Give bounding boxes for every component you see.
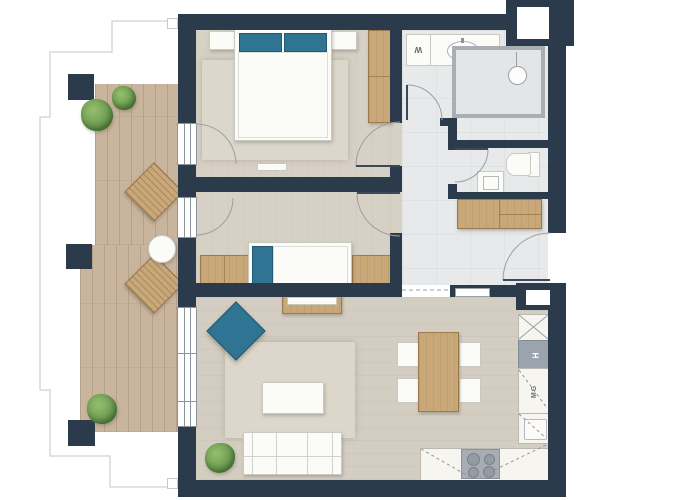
kitchen-sink-unit — [518, 413, 551, 444]
balcony-pillar-middle — [66, 244, 92, 269]
dining-chair-1 — [397, 342, 419, 367]
bedroom-1-radiator — [257, 163, 287, 171]
bed-duvet — [238, 52, 328, 138]
hall-sideboard — [457, 199, 542, 229]
wardrobe — [368, 30, 392, 123]
wc-sink — [477, 171, 504, 194]
vanity-tap — [461, 38, 464, 43]
single-bed-pillow — [252, 246, 273, 285]
wall-wc-bottom — [448, 192, 550, 199]
wall-right-upper — [548, 40, 566, 233]
balcony-round-table — [148, 235, 176, 263]
tv — [287, 297, 337, 305]
balcony-plant-small — [112, 86, 136, 110]
bedroom-1-balcony-door — [177, 123, 197, 165]
wall-left-1 — [178, 14, 196, 123]
wall-hall-vertical-b — [390, 166, 402, 192]
wc-sink-basin — [483, 176, 499, 190]
balcony-pillar-top — [68, 74, 94, 100]
bed-pillow-right — [284, 33, 327, 52]
nightstand-right — [331, 31, 357, 50]
dining-table — [418, 332, 459, 412]
facade-marker-bottom — [167, 478, 178, 489]
dining-chair-2 — [397, 378, 419, 403]
shower-arm — [516, 52, 517, 66]
bedroom-1-door-threshold — [390, 123, 402, 166]
wall-bedroom2-living — [194, 283, 402, 297]
wall-wc-left-upper — [448, 126, 457, 150]
kitchen-sink-basin — [524, 419, 547, 440]
wall-right-lower — [548, 310, 566, 497]
dining-chair-3 — [459, 342, 481, 367]
facade-marker-top — [167, 18, 178, 29]
wall-bottom — [178, 480, 566, 497]
washing-machine-label: W — [406, 34, 430, 64]
living-room-window — [177, 307, 197, 427]
toilet-bowl — [506, 153, 531, 176]
wall-bathroom-bottom — [440, 118, 457, 126]
bedroom-2-balcony-door — [177, 197, 197, 238]
tall-cabinet — [518, 314, 551, 342]
entry-door-opening — [548, 233, 566, 280]
microwave-label: MG — [531, 385, 538, 398]
dining-chair-4 — [459, 378, 481, 403]
cooktop — [461, 449, 500, 479]
wall-bedroom-divider — [194, 177, 402, 192]
shower — [452, 46, 545, 118]
shaft-opening — [517, 7, 549, 39]
bed-pillow-left — [239, 33, 282, 52]
balcony-plant-large — [81, 99, 113, 131]
balcony-pillar-bottom — [68, 420, 95, 446]
shower-head-icon — [508, 66, 527, 85]
wall-left-4 — [178, 427, 196, 497]
single-bed-duvet — [273, 246, 348, 285]
kitchen-niche — [526, 290, 550, 305]
wall-hall-vertical-a — [390, 30, 402, 123]
wall-hall-vertical-c — [390, 233, 402, 283]
sofa — [243, 432, 342, 475]
wall-wc-top — [457, 140, 550, 148]
oven-label: H — [530, 352, 539, 358]
wall-top — [178, 14, 518, 30]
floor-plan: W H MG — [0, 0, 700, 500]
nightstand-left — [209, 31, 235, 50]
oven-unit: H — [518, 340, 551, 370]
kitchen-counter-right: MG — [518, 368, 551, 415]
bedroom-2-door-threshold — [390, 192, 402, 233]
coffee-table — [262, 382, 324, 414]
living-top-window-slot — [455, 288, 490, 297]
balcony-plant-lower — [87, 394, 117, 424]
